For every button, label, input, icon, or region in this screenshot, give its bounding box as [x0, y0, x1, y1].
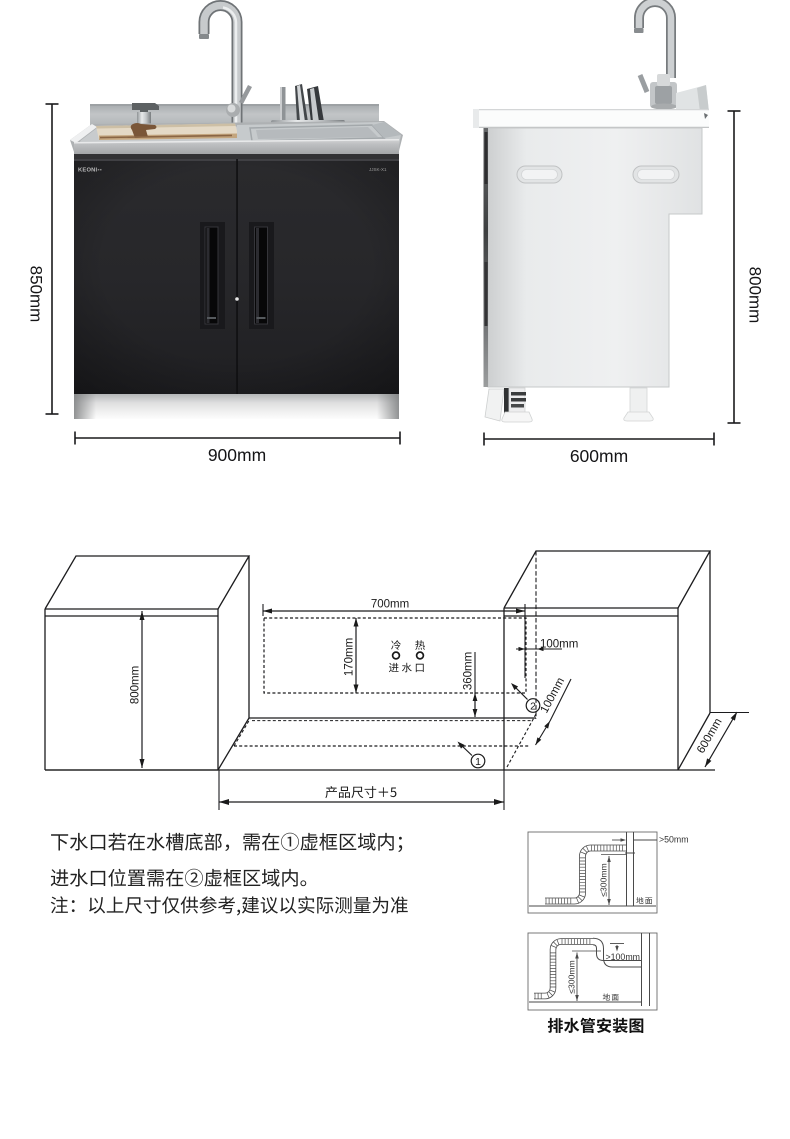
svg-text:≤300mm: ≤300mm [599, 863, 609, 896]
svg-text:JJSK-X1: JJSK-X1 [369, 167, 387, 172]
svg-text:700mm: 700mm [371, 599, 409, 611]
svg-text:>50mm: >50mm [659, 835, 689, 845]
svg-text:800mm: 800mm [746, 267, 765, 324]
svg-text:850mm: 850mm [27, 266, 46, 323]
svg-text:600mm: 600mm [570, 446, 628, 466]
svg-text:800mm: 800mm [130, 666, 142, 704]
svg-text:>100mm: >100mm [606, 952, 640, 962]
svg-text:900mm: 900mm [208, 445, 266, 465]
svg-text:170mm: 170mm [344, 638, 356, 676]
svg-text:≤300mm: ≤300mm [567, 960, 577, 993]
svg-text:100mm: 100mm [540, 639, 578, 651]
svg-text:1: 1 [475, 756, 481, 768]
svg-text:2: 2 [530, 701, 536, 713]
svg-text:600mm: 600mm [695, 716, 725, 755]
svg-text:360mm: 360mm [463, 652, 475, 690]
svg-text:KEONI▪▪: KEONI▪▪ [78, 168, 102, 174]
